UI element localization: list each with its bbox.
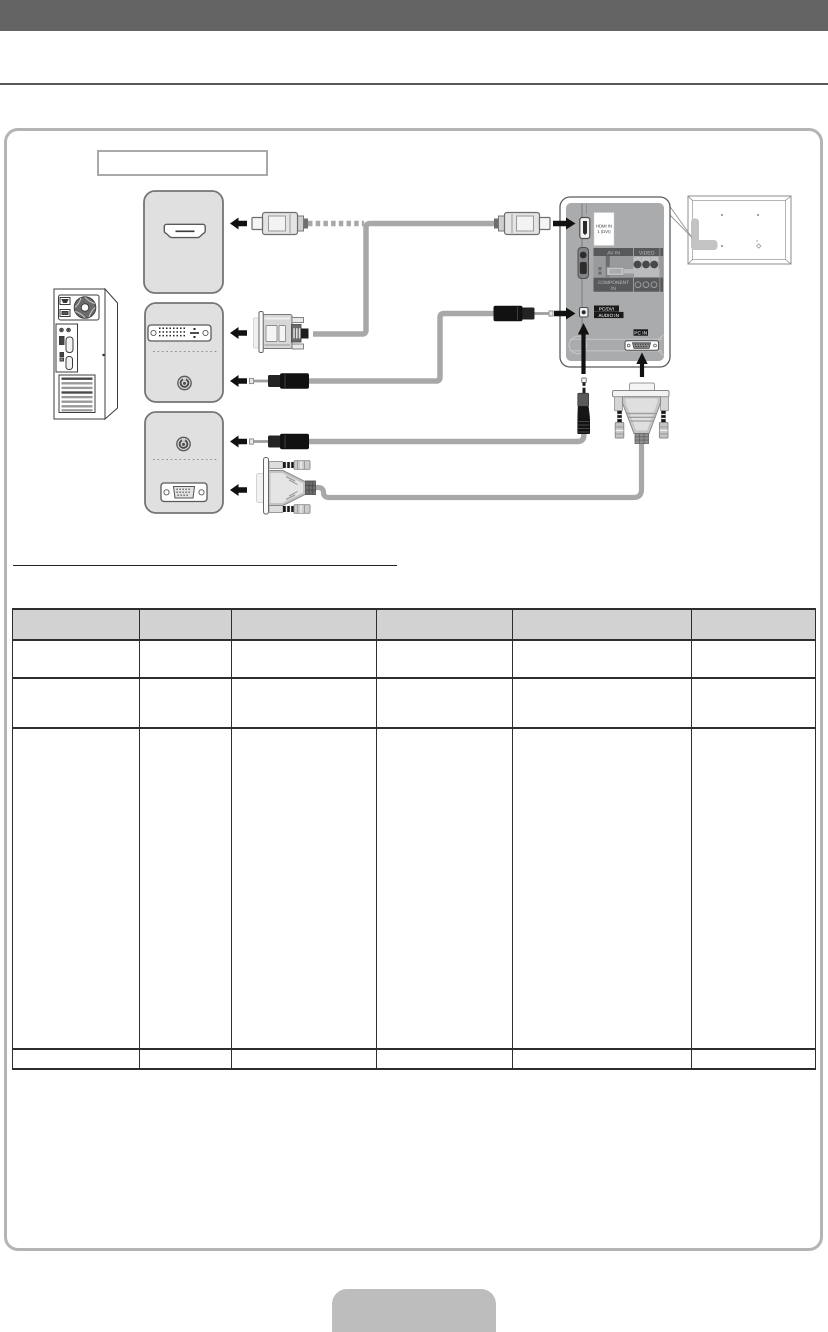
svg-text:PC/DVI: PC/DVI <box>599 306 614 311</box>
svg-text:PC IN: PC IN <box>634 330 647 336</box>
svg-text:VIDEO: VIDEO <box>639 250 655 256</box>
svg-text:IN: IN <box>611 286 616 292</box>
svg-text:HDMI IN: HDMI IN <box>596 224 612 229</box>
svg-text:AV IN: AV IN <box>607 250 620 256</box>
svg-text:COMPONENT: COMPONENT <box>598 280 629 286</box>
svg-text:AUDIO IN: AUDIO IN <box>598 313 618 318</box>
svg-text:1 (DVI): 1 (DVI) <box>597 229 611 234</box>
